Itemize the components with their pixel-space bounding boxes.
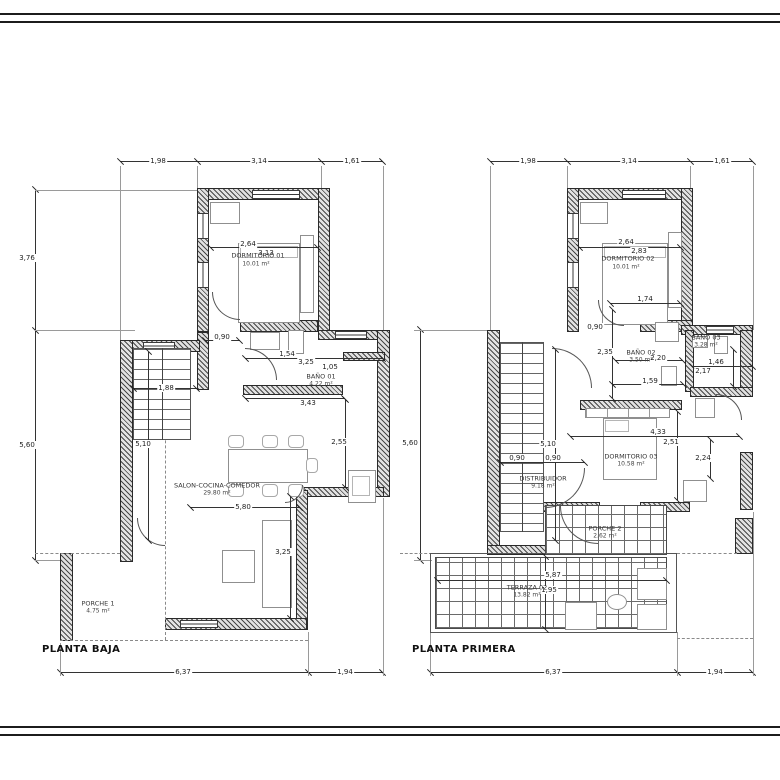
dim-label: 3,14: [250, 157, 268, 165]
dim-label: 3,25: [274, 548, 292, 556]
coffee-table: [222, 550, 255, 583]
window: [197, 262, 209, 288]
dim-line: [290, 497, 291, 618]
dim-line: [733, 350, 734, 386]
room-area: 3.50 m²: [629, 357, 653, 364]
room-name: SALON-COCINA-COMEDOR: [174, 483, 260, 490]
dim-label: 5,10: [134, 440, 152, 448]
extension-line: [308, 632, 309, 676]
terrace-lounger: [637, 568, 667, 600]
room-name: BAÑO 02: [626, 350, 655, 357]
dim-label: 5,60: [401, 439, 419, 447]
room-area: 10.01 m²: [612, 264, 639, 271]
extension-line: [567, 166, 568, 190]
window: [252, 190, 300, 199]
dimension-line-bottom: [430, 672, 753, 673]
wardrobe: [585, 408, 670, 418]
room-area: 29.80 m²: [203, 490, 230, 497]
sofa: [262, 520, 292, 608]
dim-label: 5,60: [18, 441, 36, 449]
room-name: DISTRIBUIDOR: [519, 476, 566, 483]
dim-label: 5,10: [539, 440, 557, 448]
dim-label: 2,51: [662, 438, 680, 446]
chair: [288, 435, 304, 448]
dim-label: 2,24: [694, 454, 712, 462]
room-name: BAÑO 01: [306, 374, 335, 381]
wall: [197, 188, 209, 332]
door-arc: [245, 348, 277, 380]
dim-label: 1,46: [707, 358, 725, 366]
room-name: DORMITORIO 02: [601, 256, 654, 263]
dim-label: 3,14: [620, 157, 638, 165]
dim-label: 5,87: [544, 571, 562, 579]
wall: [681, 188, 693, 332]
dim-label: 4,33: [649, 428, 667, 436]
wall: [740, 452, 753, 510]
dim-line: [500, 462, 585, 463]
dim-label: 1,98: [149, 157, 167, 165]
dim-label: 0,90: [544, 454, 562, 462]
dim-line: [570, 436, 740, 437]
bathroom-sink: [655, 322, 679, 342]
drawing-sheet: 1,98 3,14 1,61 3,76 5,60 6,37 1,94: [0, 0, 780, 780]
terrace-lounger: [565, 602, 597, 630]
extension-line: [383, 166, 384, 330]
terrace-lounger: [637, 604, 667, 630]
dim-label: 3,76: [18, 254, 36, 262]
window: [197, 213, 209, 239]
kitchen-sink: [352, 476, 370, 496]
toilet: [661, 366, 677, 386]
dim-label: 0,90: [586, 323, 604, 331]
room-name: DORMITORIO 03: [604, 454, 657, 461]
tv-bench: [683, 480, 707, 502]
porch-dashed-line: [400, 553, 432, 554]
dim-line: [210, 247, 318, 248]
dim-label: 3,43: [299, 399, 317, 407]
dim-line: [677, 412, 678, 500]
dim-label: 1,88: [157, 384, 175, 392]
room-area: 2.62 m²: [593, 533, 617, 540]
wall: [487, 330, 500, 552]
door-arc: [552, 348, 592, 388]
room-area: 13.82 m²: [513, 592, 540, 599]
sheet-frame-line-top-2: [0, 21, 780, 23]
dim-label: 3,25: [297, 358, 315, 366]
window: [567, 213, 579, 239]
extension-line: [120, 166, 121, 342]
dim-label: 0,90: [508, 454, 526, 462]
wall: [567, 188, 579, 332]
chair: [228, 435, 244, 448]
room-area: 3.28 m²: [694, 342, 718, 349]
door-arc: [212, 292, 240, 320]
dim-line: [437, 580, 667, 581]
porch-dashed-line: [35, 553, 120, 554]
dim-label: 1,61: [343, 157, 361, 165]
nightstand: [668, 232, 682, 308]
window: [335, 331, 367, 339]
wall: [343, 352, 385, 361]
extension-line: [383, 498, 384, 676]
dim-label: 6,37: [544, 668, 562, 676]
plan-title-baja: PLANTA BAJA: [42, 644, 120, 655]
wall: [318, 188, 330, 332]
porch-column: [735, 518, 753, 554]
extension-line: [753, 512, 754, 676]
dim-label: 2,35: [596, 348, 614, 356]
wall: [120, 340, 133, 562]
extension-line: [197, 166, 198, 190]
dim-label: 2,17: [694, 367, 712, 375]
wardrobe: [580, 202, 608, 224]
dim-label: 1,94: [706, 668, 724, 676]
extension-line: [414, 330, 488, 331]
dim-line: [610, 303, 681, 304]
room-name: PORCHE 2: [589, 526, 622, 533]
window: [622, 190, 666, 199]
porch-column: [60, 553, 73, 641]
plan-title-primera: PLANTA PRIMERA: [412, 644, 516, 655]
chair: [262, 484, 278, 497]
sheet-frame-line-bottom-2: [0, 734, 780, 736]
bed-pillow: [605, 420, 629, 432]
extension-line: [35, 330, 135, 331]
room-area: 4.75 m²: [86, 608, 110, 615]
wardrobe: [210, 202, 240, 224]
room-area: 9.18 m²: [531, 483, 555, 490]
chair: [262, 435, 278, 448]
dim-label: 2,64: [617, 238, 635, 246]
dim-label: 0,90: [213, 333, 231, 341]
porch-dashed-line: [677, 553, 737, 554]
sheet-frame-line-top-1: [0, 13, 780, 15]
room-name: BAÑO 03: [691, 335, 720, 342]
extension-line: [35, 560, 62, 561]
dim-label: 1,05: [321, 363, 339, 371]
window: [180, 620, 218, 628]
porch-dashed-line: [677, 638, 753, 639]
extension-line: [753, 166, 754, 330]
dim-label: 1,74: [636, 295, 654, 303]
dim-label: 1,94: [336, 668, 354, 676]
dim-label: 6,37: [174, 668, 192, 676]
room-area: 4.22 m²: [309, 381, 333, 388]
dimension-line-left: [420, 330, 421, 560]
dim-label: 1,61: [713, 157, 731, 165]
door-arc: [716, 394, 742, 420]
window: [567, 262, 579, 288]
room-name: PORCHE 1: [82, 601, 115, 608]
dimension-line-bottom: [60, 672, 383, 673]
stair-rail: [522, 342, 523, 532]
stair-rail: [162, 348, 163, 440]
bathroom-sink: [250, 332, 280, 350]
dining-table: [228, 449, 308, 483]
wall: [740, 330, 753, 392]
chair: [306, 458, 318, 473]
shower: [695, 398, 715, 418]
dimension-line-left: [35, 190, 36, 560]
dim-line: [245, 398, 345, 399]
room-area: 10.58 m²: [617, 461, 644, 468]
dim-label: 1,98: [519, 157, 537, 165]
dim-label: 5,80: [234, 503, 252, 511]
porch-dashed-line: [60, 640, 308, 641]
extension-line: [35, 190, 198, 191]
dim-label: 1,59: [641, 377, 659, 385]
sheet-frame-line-bottom-1: [0, 726, 780, 728]
room-name: TERRAZA 02: [507, 585, 548, 592]
room-name: DORMITORIO 01: [231, 253, 284, 260]
dim-label: 2,55: [330, 438, 348, 446]
terrace-table: [607, 594, 627, 610]
dim-label: 2,64: [239, 240, 257, 248]
dim-label: 1,54: [278, 350, 296, 358]
extension-line: [490, 166, 491, 330]
room-area: 10.01 m²: [242, 261, 269, 268]
